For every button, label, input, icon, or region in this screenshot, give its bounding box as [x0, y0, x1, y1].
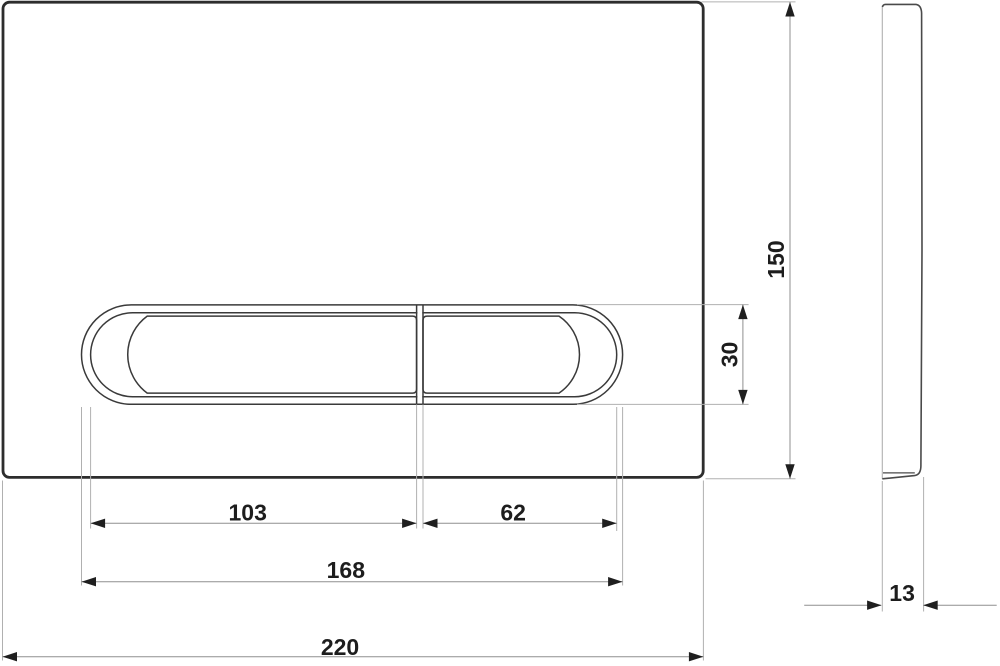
svg-text:62: 62: [500, 500, 526, 526]
svg-text:150: 150: [763, 240, 789, 278]
svg-text:13: 13: [889, 580, 915, 606]
svg-text:220: 220: [321, 634, 359, 660]
svg-text:168: 168: [327, 557, 366, 583]
svg-text:103: 103: [229, 500, 267, 526]
svg-text:30: 30: [717, 342, 743, 368]
